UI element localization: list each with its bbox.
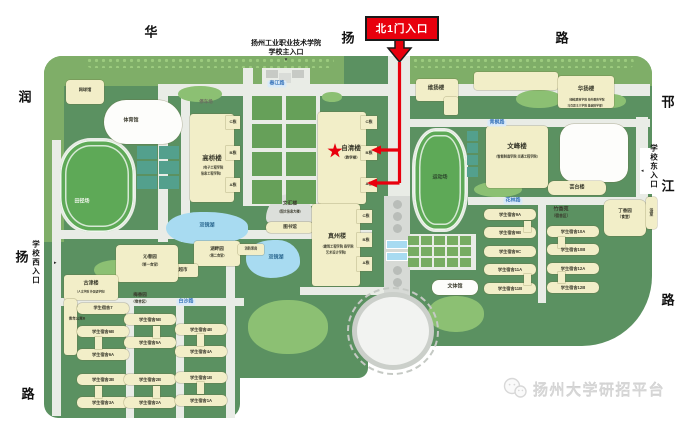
label-xiaofang: 消防泵房 [245,247,258,250]
label-dorm12b: 学生宿舍12B [561,286,585,290]
grid-cell [137,146,157,159]
wechat-icon [502,376,528,402]
road-name-chunjiang: 春江路 [267,81,286,88]
label-dorm2b: 学生宿舍2B [139,378,161,382]
label-zz-b: B栋 [363,238,370,242]
courts-east [467,131,478,177]
label-gaoqiaolou: 高桥楼 [202,156,222,163]
dorm-connector [558,272,565,283]
north-gate-banner-label: 北1门入口 [376,21,429,36]
road-char: 路 [21,388,34,401]
grid-cell [467,167,478,177]
label-zhuxiangyuan-sub: （宿舍区） [552,215,571,219]
label-wenhuilou-sub: （图文信息大楼） [277,210,303,213]
lawn-grid [252,96,316,204]
label-wangqiuguan: 网球馆 [79,88,92,92]
road-char: 路 [555,32,568,45]
road-right-dorm [538,205,546,303]
north-gate-banner: 北1门入口 [365,16,439,41]
road-char: 扬 [341,32,354,45]
label-gujinlou: 古津楼 [83,282,98,287]
campus-map: 华扬路润扬路邗江路春江路青枫路花林路白沙路停车场网球馆体育馆田径场高桥楼（电子工… [0,0,700,425]
label-zq-c: C栋 [366,120,373,124]
label-yushi: 浴室 [649,208,653,216]
campus-map-screenshot: 华扬路润扬路邗江路春江路青枫路花林路白沙路停车场网球馆体育馆田径场高桥楼（电子工… [0,0,700,425]
grid-cell [460,258,471,267]
main-entrance-line1: 扬州工业职业技术学院 [251,40,321,49]
label-dorm1a: 学生宿舍1A [190,399,212,403]
label-meixiangyuan-sub: （宿舍区） [131,300,149,304]
garden-plots [408,236,471,267]
road-char: 路 [661,294,674,307]
grid-cell [159,161,179,174]
grid-cell [434,247,445,256]
label-dorm6b: 学生宿舍6B [92,330,114,334]
watermark: 扬州大学研招平台 [502,376,665,402]
label-gaoqiaolou-sub1: （电子工程学院 [201,166,223,169]
label-dorm6a: 学生宿舍6A [92,353,114,357]
label-zhenzhoulou-sub1: （建筑工程学院 商学院 [321,245,354,248]
tree-hedge-top-right [412,57,634,68]
map-trees [516,90,562,108]
label-parking: 停车场 [199,100,213,105]
road-name-qingfeng: 青枫路 [487,120,506,127]
label-zhuxiangyuan: 竹香苑 [553,208,568,213]
label-lake-west: 双镜湖 [199,224,214,229]
grid-cell [467,131,478,141]
label-weiyanglou: 维扬楼 [428,86,445,92]
grid-cell [137,161,157,174]
label-huayanglou-sub1: （继续教育学院 海外教育学院 [567,99,604,102]
bldg-northeast-long [474,72,558,90]
label-chaoshi: 超市 [179,268,188,273]
grid-cell [447,247,458,256]
athletics-field [58,138,136,234]
label-hupanyuan: 湖畔园 [210,247,224,252]
grid-cell [408,247,419,256]
road-name-hualin: 花林路 [503,198,522,205]
label-dorm3b: 学生宿舍3B [92,378,114,382]
label-wenfenglou-sub: （智能制造学院 交通工程学院） [494,155,540,158]
label-wenfenglou: 文峰楼 [507,144,527,151]
label-huayanglou-sub2: 马克思主义学院 基础科学部） [567,105,604,108]
label-dorm9c: 学生宿舍9C [499,250,521,254]
grid-cell [467,143,478,153]
label-dorm7: 学生宿舍7 [93,306,112,310]
label-dingxiangyuan-sub: （食堂） [617,216,632,220]
circular-plaza [352,292,434,370]
label-dorm10a: 学生宿舍10A [561,230,585,234]
grid-cell [434,236,445,245]
grid-cell [408,236,419,245]
road-char: 华 [144,26,157,39]
label-tushuguan: 图书馆 [283,225,297,230]
grid-cell [460,236,471,245]
bldg-gujinlou [64,275,118,300]
dorm-connector [197,334,204,346]
west-entrance-arrow-icon: ▸ [54,260,57,266]
label-dorm11b: 学生宿舍11B [498,287,522,291]
label-dingxiangyuan: 丁香园 [618,209,632,214]
map-trees [322,92,342,102]
dorm-connector [153,326,160,338]
grid-cell [421,247,432,256]
grid-cell [252,96,282,120]
label-gq-a: A栋 [230,183,237,187]
watermark-text: 扬州大学研招平台 [533,379,665,400]
label-dorm4a: 学生宿舍4A [190,350,212,354]
grid-cell [421,258,432,267]
label-gujinlou-sub: （人文学院 外国语学院） [75,291,107,294]
label-zz-c: C栋 [363,214,370,218]
label-lake-east: 双镜湖 [268,256,283,261]
grid-cell [252,180,282,204]
dorm-connector [95,337,102,349]
grid-cell [137,176,157,189]
label-zhenzhoulou-sub2: 艺术设计学院） [326,251,348,254]
map-trees [248,300,328,354]
main-entrance-label: 扬州工业职业技术学院 学校主入口 ▼ [251,40,321,62]
boulevard-tree [393,224,402,233]
boulevard-tree [393,212,402,221]
label-dorm9b: 学生宿舍9B [499,231,521,235]
dorm-connector [524,274,531,285]
dorm-connector [153,386,160,398]
label-gaoqiaolou-sub2: 信息工程学院） [201,172,223,175]
grid-cell [408,258,419,267]
label-qinchunyuan-sub: （第一食堂） [140,263,161,267]
main-entrance-arrow-icon: ▼ [251,58,321,63]
label-dorm12a: 学生宿舍12A [561,267,585,271]
grid-cell [286,152,316,176]
weiyanglou-leg [444,97,458,115]
dorm-connector [197,382,204,394]
bridge-water-2 [386,252,408,261]
bridge-water-1 [386,240,408,249]
grid-cell [447,236,458,245]
grid-cell [286,180,316,204]
road-char: 邗 [661,96,674,109]
label-gq-c: C栋 [230,120,237,124]
grid-cell [467,155,478,165]
map-trees [428,296,484,332]
label-zz-a: A栋 [363,261,370,265]
label-ziqinglou: 自清楼 [341,146,361,153]
label-dorm3a: 学生宿舍3A [92,401,114,405]
road-char: 江 [661,180,674,193]
label-dorm5b: 学生宿舍5B [139,318,161,322]
grid-cell [286,124,316,148]
label-dorm11a: 学生宿舍11A [498,268,522,272]
grid-cell [434,258,445,267]
label-gq-b: B栋 [230,151,237,155]
label-dorm2a: 学生宿舍2A [139,401,161,405]
label-zq-b: B栋 [366,151,373,155]
grid-cell [252,152,282,176]
label-meixiangyuan: 梅香园 [133,293,147,298]
label-dorm5a: 学生宿舍5A [139,341,161,345]
label-zhenzhoulou: 真州楼 [328,234,346,240]
label-dorm9a: 学生宿舍9A [499,213,521,217]
grid-cell [460,247,471,256]
label-wenhuilou: 文汇楼 [283,203,297,208]
label-yundongchang: 运动场 [432,176,447,181]
label-zq-a: A栋 [366,182,373,186]
gate-ramp-right [292,70,304,78]
label-hupanyuan-sub: （第二食堂） [207,254,226,257]
label-tianjingchang: 田径场 [74,200,89,205]
road-north-gate [388,56,410,206]
east-entrance-label: 学校东入口 [650,144,658,189]
east-entrance-arrow-icon: ◂ [641,168,644,174]
grid-cell [421,236,432,245]
grid-cell [159,176,179,189]
label-tiyuguan: 体育馆 [123,119,138,124]
dorm-connector [524,221,531,232]
road-name-baisha: 白沙路 [176,299,195,306]
grid-cell [286,96,316,120]
boulevard-tree [393,278,402,287]
bldg-qingnian-gongyu-b [64,299,77,355]
label-qingnian: 青年公寓B [69,317,86,321]
label-ziqinglou-sub: （教学楼） [342,156,360,160]
label-dorm1b: 学生宿舍1B [190,376,212,380]
road-char: 润 [18,91,31,104]
grid-cell [447,258,458,267]
road-char: 扬 [15,251,28,264]
label-yuntailou: 芸台楼 [569,186,584,191]
road-below-zhenzhou [300,287,388,295]
bldg-white-east [560,124,628,182]
bldg-tiyuguan [104,100,182,144]
label-huayanglou: 华扬楼 [578,87,595,93]
grid-cell [159,146,179,159]
west-entrance-label: 学校西入口 [32,240,40,285]
boulevard-tree [393,200,402,209]
gate-ramp-left [266,70,278,78]
boulevard-tree [393,266,402,275]
label-wentiguan: 文体馆 [447,285,462,290]
label-qinchunyuan: 沁春园 [143,255,157,260]
grid-cell [252,124,282,148]
label-dorm10b: 学生宿舍10B [561,248,585,252]
label-dorm4b: 学生宿舍4B [190,328,212,332]
dorm-connector [95,386,102,398]
courts-west [137,146,179,189]
